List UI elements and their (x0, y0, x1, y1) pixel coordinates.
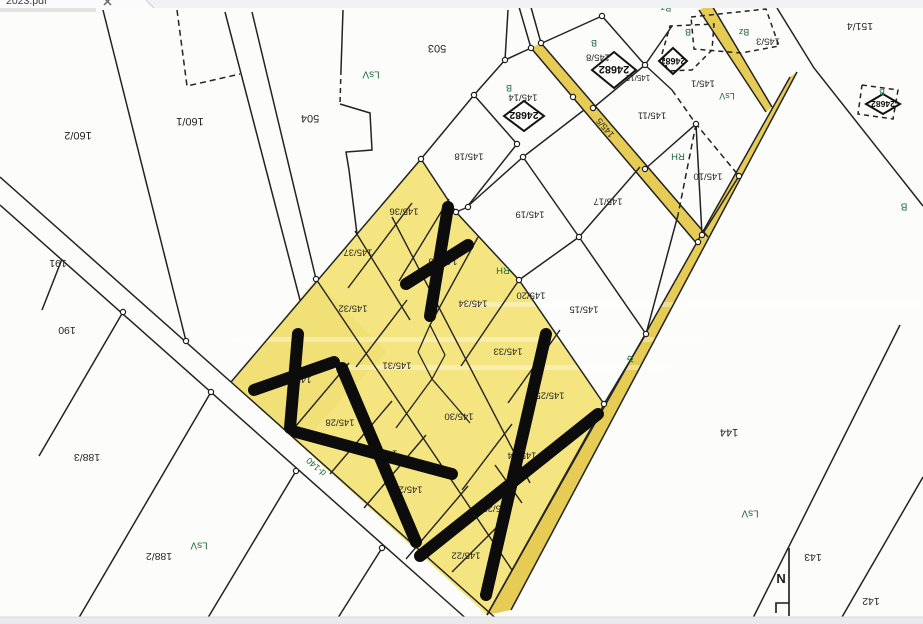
svg-text:N: N (776, 571, 785, 586)
svg-text:24682: 24682 (599, 63, 630, 75)
svg-text:Bz: Bz (738, 27, 749, 37)
svg-text:145/1: 145/1 (691, 78, 715, 89)
svg-text:145/11: 145/11 (638, 110, 666, 121)
svg-text:188/3: 188/3 (74, 451, 100, 463)
svg-text:191: 191 (49, 257, 67, 269)
svg-text:145/34: 145/34 (458, 298, 487, 309)
svg-text:145/15: 145/15 (569, 304, 598, 315)
svg-text:145/10: 145/10 (693, 171, 722, 182)
svg-text:LsV: LsV (719, 91, 735, 101)
svg-text:RH: RH (496, 265, 510, 276)
svg-text:24681: 24681 (660, 56, 685, 66)
svg-text:145/32: 145/32 (338, 303, 367, 314)
svg-text:B: B (900, 200, 907, 211)
svg-text:B: B (591, 38, 597, 48)
svg-text:142: 142 (862, 595, 880, 607)
svg-text:145/33: 145/33 (493, 346, 522, 357)
svg-text:190: 190 (58, 324, 76, 336)
svg-text:143: 143 (804, 551, 822, 563)
svg-text:145/37: 145/37 (343, 247, 372, 258)
svg-text:LsV: LsV (190, 539, 208, 550)
svg-text:B: B (506, 83, 512, 93)
svg-text:145/25: 145/25 (535, 390, 564, 401)
svg-text:145/8: 145/8 (586, 52, 610, 63)
svg-text:145/28: 145/28 (325, 417, 354, 428)
svg-text:151/4: 151/4 (847, 20, 873, 32)
svg-text:B: B (879, 87, 885, 97)
svg-text:145/3: 145/3 (756, 36, 780, 47)
svg-text:504: 504 (301, 112, 319, 124)
svg-text:160/1: 160/1 (176, 115, 204, 127)
svg-text:2023.pdf: 2023.pdf (6, 0, 47, 7)
svg-text:145/30: 145/30 (444, 411, 473, 422)
svg-text:145/19: 145/19 (515, 209, 544, 220)
svg-text:145/36: 145/36 (389, 206, 418, 217)
svg-text:RH: RH (671, 151, 685, 162)
svg-text:145/17: 145/17 (593, 196, 622, 207)
svg-text:145/12: 145/12 (625, 73, 650, 82)
svg-text:188/2: 188/2 (146, 550, 172, 562)
svg-text:24682: 24682 (871, 99, 895, 109)
svg-text:160/2: 160/2 (64, 129, 92, 141)
svg-text:145/18: 145/18 (454, 151, 483, 162)
svg-text:145/20: 145/20 (516, 290, 545, 301)
svg-text:B: B (685, 27, 691, 37)
svg-text:24682: 24682 (509, 109, 538, 121)
svg-text:LsV: LsV (362, 68, 380, 79)
svg-text:503: 503 (428, 42, 446, 54)
svg-text:LsV: LsV (741, 507, 759, 518)
svg-text:144: 144 (720, 426, 738, 438)
svg-text:145/22: 145/22 (451, 550, 480, 561)
svg-text:145/31: 145/31 (382, 360, 411, 371)
